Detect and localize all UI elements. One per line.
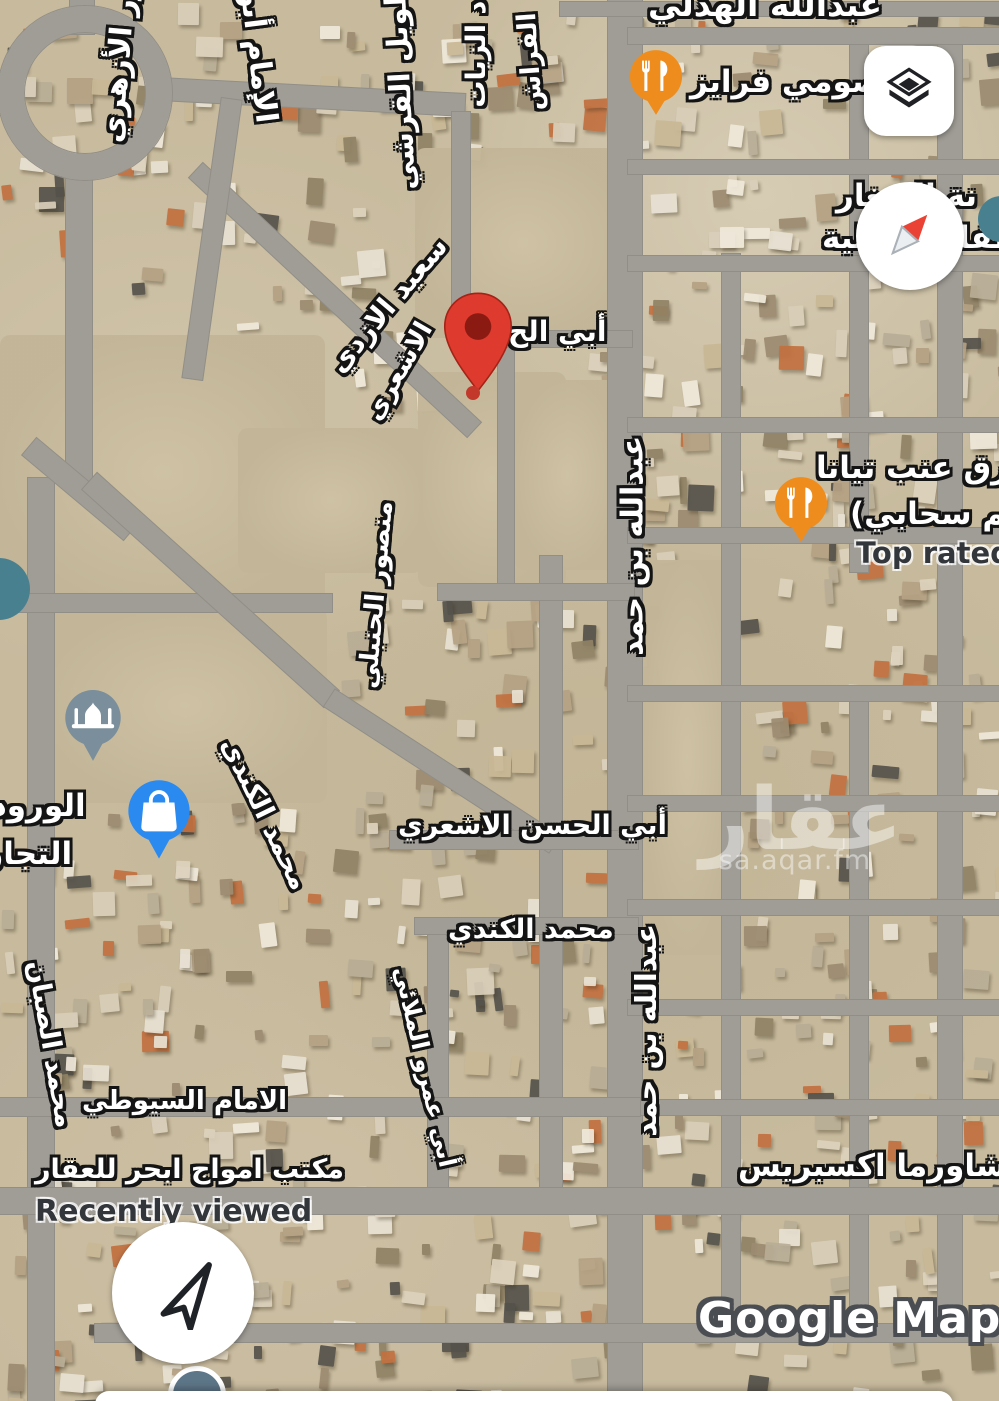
building [284, 1071, 309, 1096]
building [650, 193, 676, 213]
building [743, 339, 756, 361]
building [825, 625, 843, 648]
building [906, 1260, 916, 1277]
building [758, 1133, 771, 1146]
building [838, 514, 845, 527]
building [586, 873, 608, 884]
building [726, 179, 745, 196]
mosque-poi-pin[interactable] [62, 688, 124, 768]
restaurant-poi-pin[interactable] [772, 475, 830, 549]
building [995, 865, 999, 891]
building [151, 161, 169, 174]
street-label-abi-alhasan-alashari: أبي الحسن الاشعري [398, 812, 667, 840]
street-label-mohammed-alkindi: محمد الكندي [448, 916, 614, 944]
poi-label-alwurud-line1: الورود الب [0, 790, 86, 823]
building [591, 1303, 607, 1326]
navigation-arrow-icon [144, 1252, 222, 1334]
building [979, 731, 999, 740]
building [99, 993, 120, 1012]
building [319, 980, 331, 1008]
building [573, 1162, 599, 1173]
building [906, 1215, 920, 1232]
building [765, 1242, 792, 1262]
building [887, 609, 897, 621]
building [916, 348, 929, 363]
building [654, 120, 681, 146]
building [744, 926, 768, 946]
building [86, 1242, 102, 1258]
building [131, 283, 145, 296]
shopping-poi-pin[interactable] [124, 778, 194, 866]
building [499, 1154, 525, 1172]
building [254, 1346, 262, 1359]
building [344, 900, 358, 919]
building [675, 1115, 683, 1129]
building [67, 876, 92, 890]
building [309, 1035, 328, 1046]
building [811, 1239, 839, 1265]
building [466, 967, 494, 995]
building [337, 1279, 350, 1289]
building [963, 969, 990, 990]
building [390, 1281, 400, 1294]
building [768, 231, 793, 252]
building [680, 477, 688, 504]
building [14, 1256, 25, 1276]
street-label-alzayat: د الزيات [463, 0, 491, 154]
bottom-sheet-handle[interactable] [95, 1391, 953, 1401]
building [707, 1232, 721, 1245]
building [306, 928, 331, 943]
building [119, 983, 131, 992]
building [193, 948, 210, 972]
building [784, 1355, 807, 1368]
building [692, 1173, 706, 1187]
poi-label-amwaj-abhur-office: مكتب امواج ابحر للعقار [35, 1156, 344, 1184]
navigate-button[interactable] [112, 1222, 254, 1364]
building [811, 945, 823, 967]
building [512, 749, 534, 773]
shopping-bag-icon [124, 847, 194, 866]
building [512, 690, 523, 703]
building [397, 925, 406, 943]
building [353, 208, 366, 217]
building [450, 990, 460, 998]
building [107, 814, 120, 827]
building [451, 619, 467, 644]
building [443, 600, 454, 622]
building [493, 988, 504, 1012]
building [892, 646, 903, 665]
poi-label-waraq-enab-tiana: رق عنب تيانا [816, 452, 999, 485]
road-segment [628, 1100, 999, 1115]
building [814, 193, 836, 221]
road-segment [628, 160, 999, 174]
building [584, 976, 596, 985]
building [504, 1005, 516, 1026]
building [963, 1121, 983, 1144]
sand-patch [514, 380, 619, 570]
building [1, 910, 13, 929]
poi-label-soumi-fries: صومي فرايز [690, 66, 882, 99]
destination-pin[interactable] [440, 290, 516, 402]
building [919, 578, 936, 591]
building [103, 941, 114, 956]
building [788, 306, 804, 327]
building [488, 963, 499, 972]
poi-label-cloud-restaurant: عم سحابي) [850, 498, 999, 531]
building [356, 249, 385, 278]
building [743, 228, 770, 239]
poi-label-shawarma-express: شاورما اكسبريس [738, 1150, 999, 1183]
building [820, 722, 829, 734]
building [656, 475, 680, 496]
building [779, 345, 805, 370]
building [810, 751, 833, 765]
building [196, 37, 223, 57]
compass-needle-icon [879, 203, 941, 269]
layers-icon [884, 64, 934, 118]
building [333, 849, 359, 875]
building [507, 621, 534, 649]
building [882, 333, 910, 347]
road-segment [628, 686, 999, 701]
building [681, 380, 700, 407]
building [355, 807, 364, 833]
building [220, 878, 234, 894]
building [796, 1023, 812, 1038]
building [476, 600, 489, 621]
layers-button[interactable] [864, 46, 954, 136]
building [143, 999, 153, 1016]
building [451, 1340, 467, 1359]
building [365, 791, 382, 804]
building [78, 1304, 92, 1313]
building [308, 220, 335, 243]
building [692, 282, 707, 290]
sand-patch [238, 428, 423, 573]
building [883, 924, 898, 940]
building [64, 918, 90, 930]
building [920, 320, 931, 340]
road-segment [0, 594, 332, 612]
building [319, 1368, 329, 1389]
building [687, 484, 714, 511]
building [989, 1270, 999, 1279]
building [369, 1136, 379, 1159]
google-maps-logo: Google Maps [698, 1296, 999, 1342]
building [823, 98, 846, 109]
road-segment [66, 178, 92, 490]
building [824, 579, 834, 605]
restaurant-icon [772, 530, 830, 549]
building [1, 184, 13, 200]
building [457, 720, 476, 737]
building [829, 543, 836, 561]
street-label-abdullah-bin-hamad-lower: عبدالله بن حمد [631, 880, 661, 1180]
building [572, 1144, 595, 1154]
building [237, 322, 259, 331]
building [402, 600, 423, 609]
building [889, 1025, 911, 1042]
compass-button[interactable] [856, 182, 964, 290]
building [743, 292, 766, 302]
building [367, 823, 378, 834]
building [655, 1212, 672, 1230]
building [828, 963, 845, 978]
building [126, 875, 152, 886]
street-label-abdullah-bin-hamad-upper: عبدالله بن حمد [617, 381, 649, 711]
street-label-tawil-alqurashi: طويل القرشي [378, 0, 422, 216]
building [920, 710, 939, 723]
building [510, 1056, 521, 1077]
building [1, 1003, 23, 1014]
building [154, 1035, 168, 1048]
building [503, 1303, 515, 1323]
building [300, 300, 313, 310]
building [778, 217, 805, 228]
aqar-watermark-subtitle: sa.aqar.fm [700, 845, 890, 876]
building [368, 898, 380, 906]
street-label-alfarash: الفراش [512, 0, 550, 137]
building [519, 1312, 534, 1320]
building [343, 136, 358, 162]
building [424, 699, 445, 716]
building [571, 1357, 598, 1379]
road-segment [628, 1000, 999, 1015]
building [401, 879, 420, 906]
building [281, 1054, 306, 1069]
building [588, 1006, 604, 1024]
building [553, 123, 575, 143]
building [573, 735, 593, 745]
building [8, 1363, 25, 1390]
building [147, 893, 159, 915]
building [272, 286, 281, 301]
building [178, 3, 199, 25]
building [822, 1033, 832, 1046]
building [749, 180, 758, 190]
building [401, 1290, 425, 1305]
building [924, 655, 938, 672]
building [157, 985, 170, 1012]
building [533, 1291, 561, 1307]
building [7, 1397, 23, 1401]
building [685, 1121, 710, 1140]
building [771, 717, 789, 738]
building [720, 227, 745, 248]
street-label-abi-alhasan-part1: أبي الح [508, 317, 606, 346]
restaurant-icon [627, 103, 685, 122]
building [474, 1215, 493, 1241]
road-segment [628, 28, 999, 44]
building [465, 1051, 490, 1075]
building [475, 1293, 495, 1312]
building [986, 52, 999, 67]
building [438, 875, 464, 899]
building [346, 31, 355, 47]
pin-anchor-dot [466, 386, 480, 400]
building [762, 745, 776, 757]
building [695, 1239, 703, 1253]
building [778, 578, 794, 598]
building [922, 1272, 936, 1285]
building [522, 1231, 541, 1252]
building [805, 354, 823, 377]
building [774, 968, 784, 977]
building [522, 1264, 539, 1278]
building [166, 208, 185, 227]
building [747, 131, 758, 156]
roundabout [0, 6, 172, 180]
building [279, 894, 288, 911]
building [678, 1040, 688, 1048]
top-rated-badge: Top rated [856, 538, 999, 568]
mosque-icon [62, 749, 124, 768]
building [754, 1017, 773, 1036]
building [376, 1248, 400, 1264]
building [367, 1216, 391, 1235]
building [583, 106, 607, 132]
building [965, 1070, 987, 1079]
building [422, 1244, 430, 1255]
building [110, 1125, 120, 1136]
building [816, 294, 833, 306]
building [970, 273, 999, 301]
building [583, 943, 592, 962]
building [653, 300, 670, 322]
building [890, 1230, 901, 1241]
building [180, 949, 190, 969]
building [758, 109, 782, 136]
building [265, 1120, 286, 1142]
building [282, 1280, 291, 1304]
road-segment [628, 900, 999, 915]
building [922, 1248, 935, 1275]
building [141, 267, 163, 282]
building [306, 177, 323, 204]
building [381, 1350, 396, 1363]
street-label-mohammed-alsabban: محمد الصبان [16, 928, 84, 1159]
building [371, 1037, 389, 1048]
building [318, 1345, 337, 1367]
road-segment [628, 418, 999, 432]
building [979, 78, 999, 106]
building [835, 329, 847, 356]
building [490, 1259, 516, 1286]
building [347, 959, 373, 978]
building [873, 660, 889, 677]
building [232, 1123, 258, 1135]
aqar-watermark: عقار sa.aqar.fm [700, 782, 890, 876]
building [815, 932, 834, 942]
building [258, 922, 277, 948]
building [419, 784, 434, 806]
building [883, 710, 891, 720]
building [370, 832, 390, 849]
building [354, 369, 366, 388]
street-label-alimam-alsuyuti: الامام السيوطي [82, 1088, 287, 1115]
building [582, 1129, 594, 1143]
building [571, 640, 594, 659]
building [226, 971, 252, 982]
building [916, 1056, 928, 1066]
road-segment [438, 584, 634, 600]
building [728, 124, 745, 147]
building [194, 1025, 204, 1039]
building [746, 1048, 763, 1059]
building [893, 348, 908, 365]
poi-label-alwurud-line2: التجارية ( [0, 838, 72, 871]
building [489, 756, 511, 777]
building [83, 1065, 109, 1082]
building [255, 1029, 264, 1040]
satellite-map[interactable]: عبدالله الهدلي نور الأزهري الإمام أبو طو… [0, 0, 999, 1401]
building [151, 1115, 168, 1134]
building [4, 951, 14, 973]
street-label-abdullah-alhadali: عبدالله الهدلي [648, 0, 882, 23]
building [468, 639, 480, 658]
building [798, 879, 815, 901]
building [137, 924, 161, 943]
building [93, 891, 116, 915]
building [970, 1343, 994, 1370]
building [59, 1373, 85, 1393]
building [545, 1311, 561, 1324]
restaurant-poi-pin[interactable] [627, 48, 685, 122]
building [579, 1258, 604, 1286]
building [320, 26, 340, 39]
building [693, 1048, 704, 1066]
building [921, 1369, 940, 1381]
building [778, 449, 803, 459]
